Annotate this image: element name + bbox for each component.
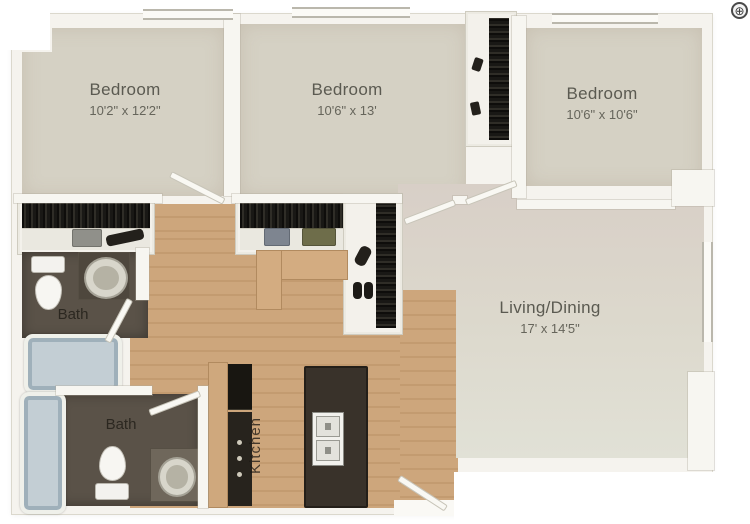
hanging-clothes-icon xyxy=(240,200,346,228)
hanging-clothes-icon xyxy=(376,200,396,328)
wall xyxy=(517,200,675,209)
window xyxy=(143,9,233,20)
wall xyxy=(136,248,149,300)
corridor-wood-floor xyxy=(152,204,238,234)
hanging-clothes-icon xyxy=(489,18,509,140)
wall xyxy=(224,14,240,196)
storage-basket xyxy=(264,228,290,246)
bathtub-icon xyxy=(20,392,66,514)
island-sink-icon xyxy=(312,412,344,466)
storage-basket xyxy=(302,228,336,246)
bathtub-icon xyxy=(24,334,122,394)
zoom-control-icon[interactable]: ⊕ xyxy=(731,2,748,19)
sink-icon xyxy=(158,457,196,497)
kitchen-counter-left xyxy=(208,362,228,508)
plan-corner-cut xyxy=(454,472,750,524)
kitchen-counter-side xyxy=(256,250,282,310)
plan-corner-cut xyxy=(0,0,50,50)
shoe-icon xyxy=(353,282,362,299)
kitchen-wood-floor xyxy=(400,288,458,508)
refrigerator-icon xyxy=(228,364,252,410)
floor-plan-canvas: Bedroom 10'2" x 12'2" Bedroom 10'6" x 13… xyxy=(0,0,750,524)
wall xyxy=(56,386,152,395)
bedroom2-floor xyxy=(240,24,466,196)
window xyxy=(552,13,658,24)
window xyxy=(292,7,410,18)
wall xyxy=(14,194,162,203)
window xyxy=(702,242,713,342)
wall xyxy=(512,16,526,198)
hanging-clothes-icon xyxy=(22,200,150,228)
stove-icon xyxy=(228,412,252,506)
storage-basket xyxy=(72,229,102,247)
sink-icon xyxy=(84,257,128,299)
toilet-icon xyxy=(95,446,129,500)
shoe-icon xyxy=(364,282,373,299)
wall xyxy=(198,386,208,508)
wall xyxy=(232,194,402,203)
bedroom1-floor xyxy=(22,28,224,196)
wall-bump xyxy=(672,170,714,206)
wall-step xyxy=(688,372,714,470)
bedroom3-floor xyxy=(526,28,702,186)
toilet-icon xyxy=(31,256,65,310)
